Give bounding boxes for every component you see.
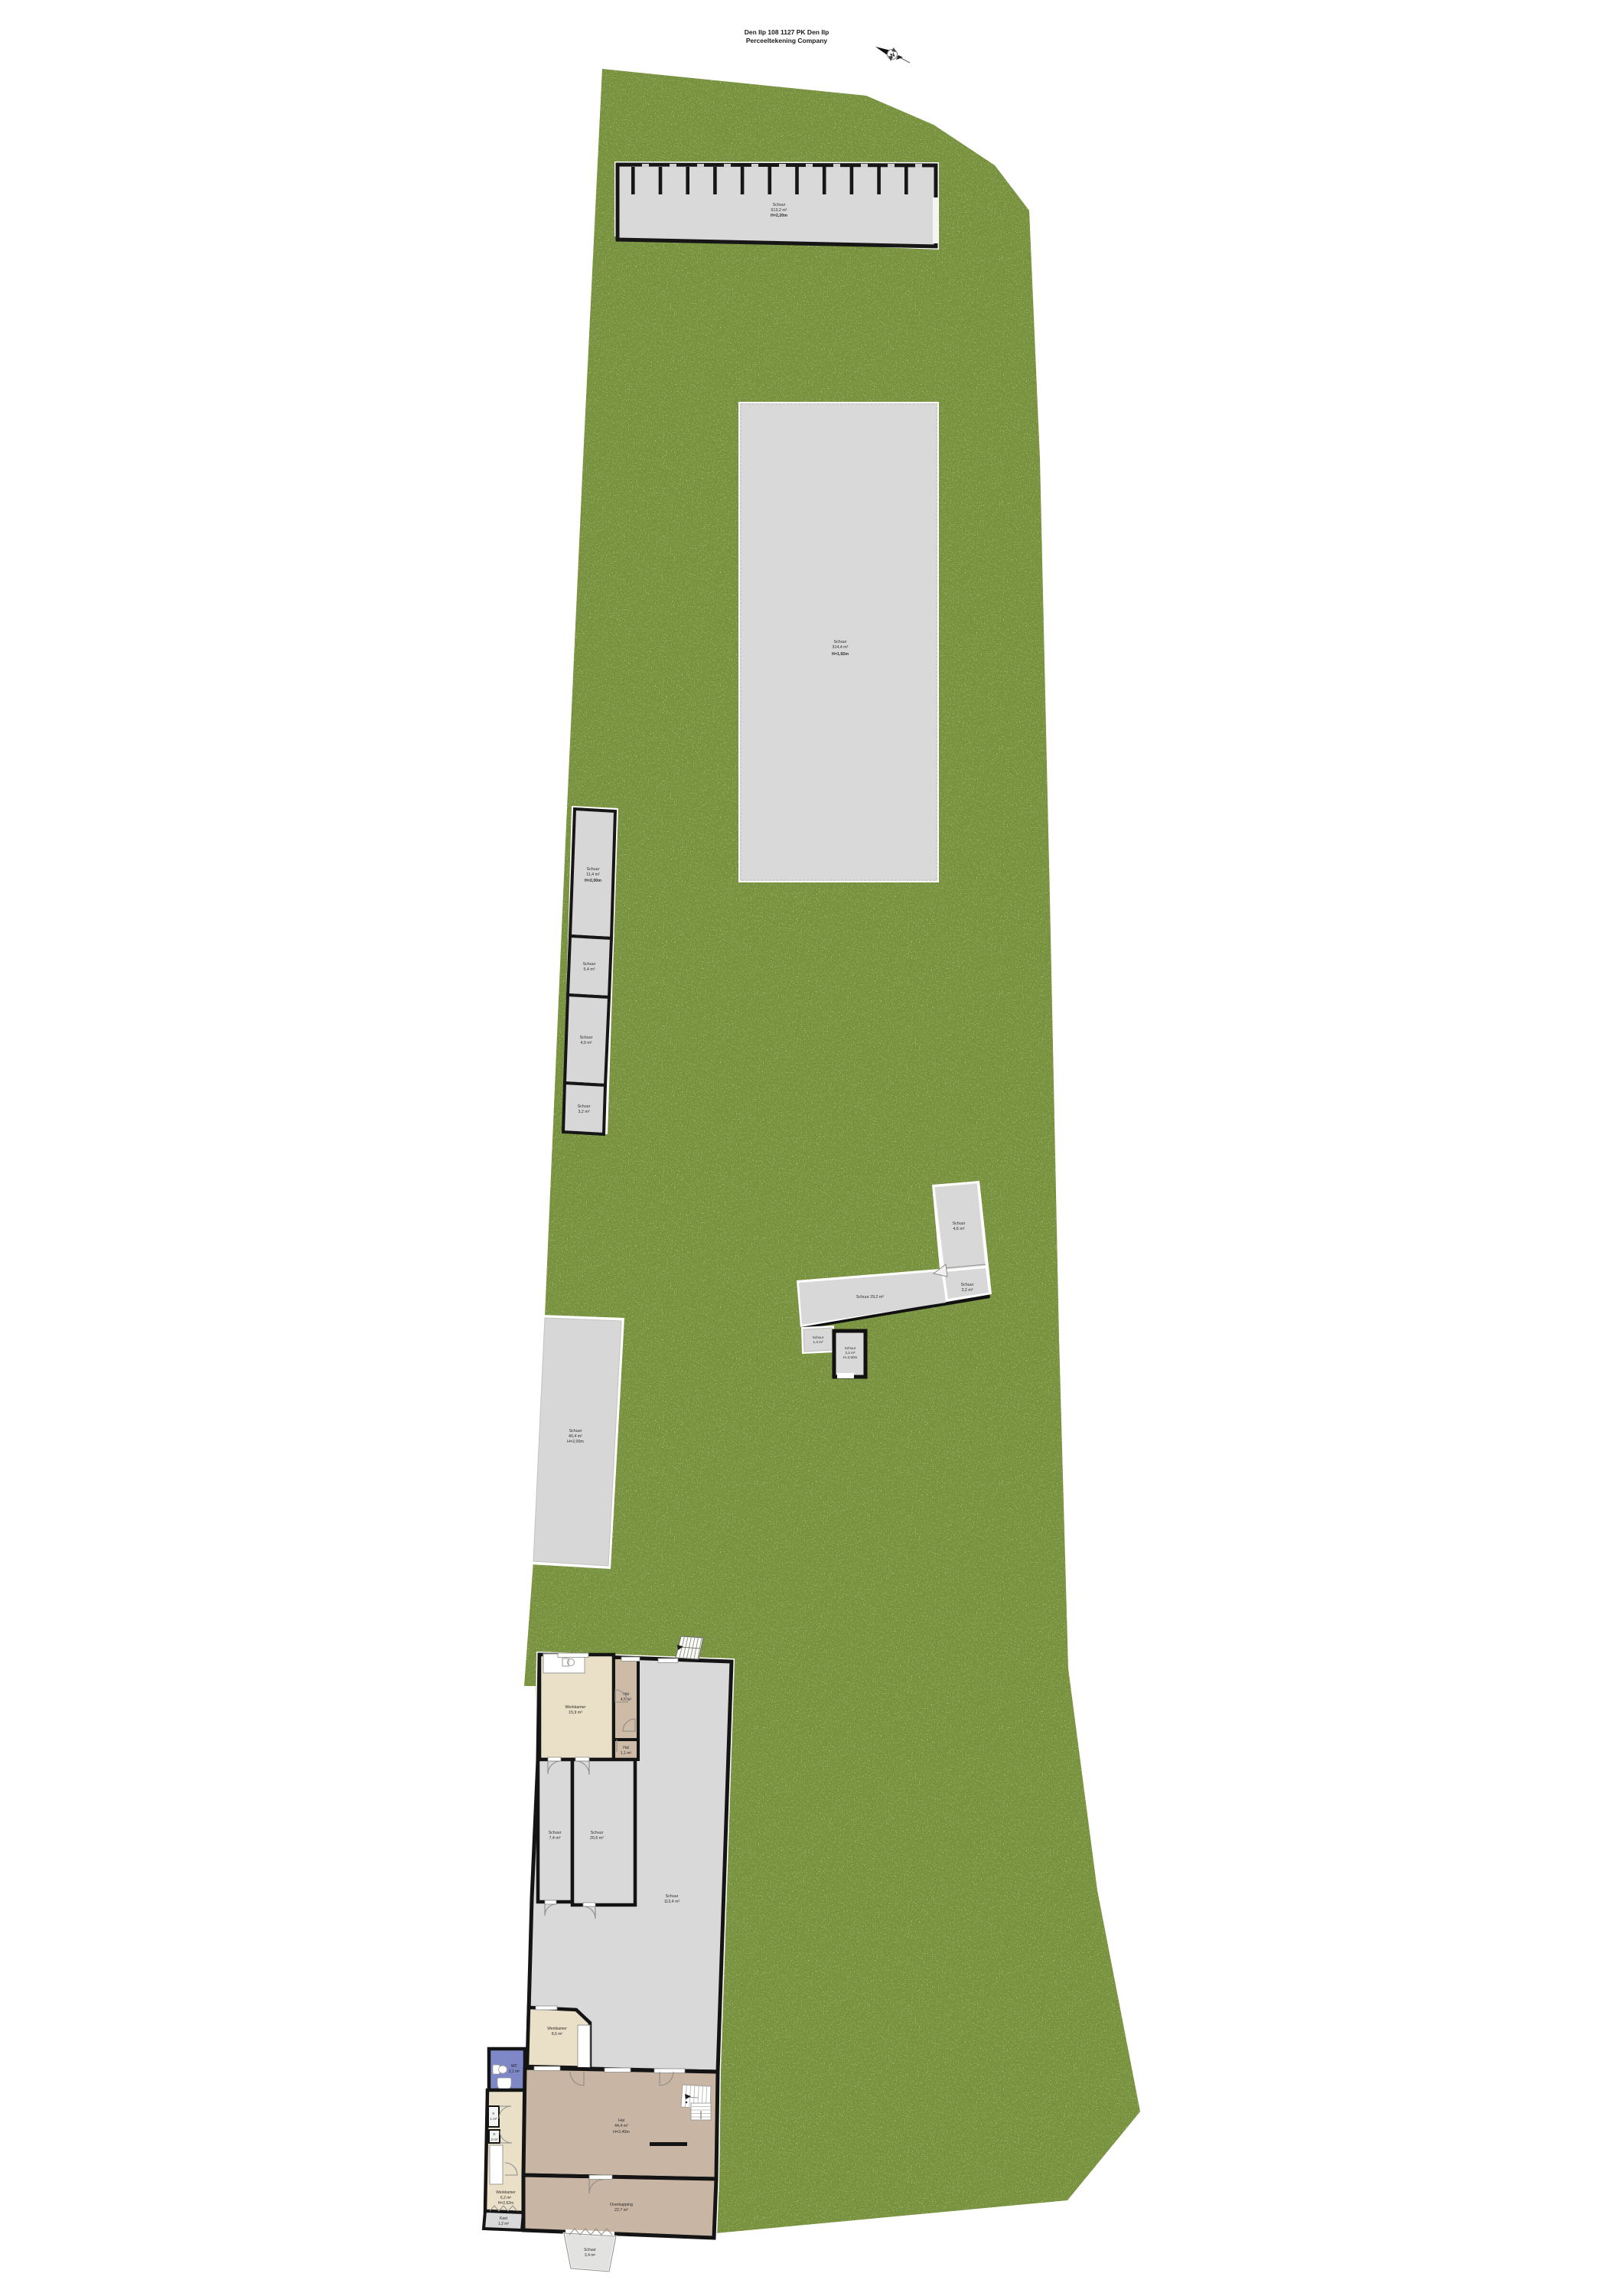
- svg-text:22,7 m²: 22,7 m²: [614, 2208, 628, 2213]
- svg-text:Schuur: Schuur: [587, 867, 600, 872]
- svg-text:Perceeltekening Company: Perceeltekening Company: [746, 37, 828, 44]
- svg-text:3,2 m²: 3,2 m²: [961, 1288, 973, 1293]
- svg-text:K: K: [493, 2132, 495, 2136]
- svg-text:Schuur: Schuur: [584, 2248, 596, 2252]
- svg-text:H=2,62m: H=2,62m: [498, 2201, 513, 2206]
- svg-text:Schuur: Schuur: [773, 203, 786, 207]
- svg-text:1,3 m²: 1,3 m²: [813, 1340, 823, 1344]
- svg-text:11,4 m²: 11,4 m²: [586, 872, 600, 877]
- svg-text:6,2 m²: 6,2 m²: [500, 2196, 512, 2200]
- svg-text:Kast: Kast: [500, 2216, 508, 2221]
- svg-text:Werkkamer: Werkkamer: [565, 1705, 586, 1710]
- svg-text:Schuur: Schuur: [953, 1221, 966, 1226]
- svg-text:Schuur: Schuur: [813, 1336, 824, 1339]
- svg-text:Schuur: Schuur: [578, 1104, 591, 1109]
- svg-text:2,2 m²: 2,2 m²: [845, 1351, 855, 1355]
- svg-text:20,6 m²: 20,6 m²: [590, 1836, 604, 1841]
- svg-text:Schuur: Schuur: [834, 640, 847, 644]
- svg-text:1 m²: 1 m²: [490, 2117, 498, 2121]
- svg-text:Schuur 29,2 m²: Schuur 29,2 m²: [856, 1295, 884, 1300]
- svg-text:Hal: Hal: [623, 1746, 629, 1750]
- svg-text:4,0 m²: 4,0 m²: [580, 1041, 592, 1045]
- svg-text:3,2 m²: 3,2 m²: [578, 1110, 589, 1114]
- svg-text:H=2,20m: H=2,20m: [771, 214, 787, 218]
- svg-text:3,4 m²: 3,4 m²: [585, 2253, 596, 2258]
- svg-text:Schuur: Schuur: [580, 1035, 593, 1040]
- svg-text:H=1,92m: H=1,92m: [832, 652, 849, 657]
- svg-text:15,9 m²: 15,9 m²: [569, 1711, 582, 1715]
- svg-text:K: K: [492, 2112, 494, 2115]
- svg-text:2,1 m²: 2,1 m²: [509, 2069, 520, 2074]
- svg-text:1,2 m²: 1,2 m²: [498, 2222, 510, 2226]
- svg-text:4,6 m²: 4,6 m²: [953, 1227, 964, 1231]
- svg-text:2 m²: 2 m²: [491, 2138, 499, 2141]
- svg-text:5,4 m²: 5,4 m²: [583, 967, 595, 972]
- svg-text:Schuur: Schuur: [583, 962, 596, 967]
- svg-text:H=2,50m: H=2,50m: [843, 1355, 858, 1359]
- svg-text:Schuur: Schuur: [549, 1831, 562, 1835]
- svg-text:H=2,40m: H=2,40m: [613, 2130, 630, 2135]
- svg-text:Werkkamer: Werkkamer: [547, 2027, 567, 2031]
- svg-text:Schuur: Schuur: [666, 1894, 679, 1899]
- svg-text:Werkkamer: Werkkamer: [496, 2190, 516, 2195]
- svg-text:314,4 m²: 314,4 m²: [833, 645, 849, 650]
- svg-text:Overkapping: Overkapping: [610, 2203, 633, 2207]
- svg-text:1,1 m²: 1,1 m²: [621, 1751, 632, 1756]
- svg-text:113,4 m²: 113,4 m²: [664, 1900, 680, 1904]
- svg-text:Schuur: Schuur: [845, 1346, 856, 1350]
- svg-text:Schuur: Schuur: [961, 1283, 974, 1287]
- svg-text:Schuur: Schuur: [591, 1831, 604, 1835]
- svg-text:7,4 m²: 7,4 m²: [549, 1836, 560, 1841]
- svg-text:Hal: Hal: [618, 2118, 624, 2123]
- svg-text:Schuur: Schuur: [569, 1429, 582, 1433]
- svg-text:44,4 m²: 44,4 m²: [614, 2124, 628, 2128]
- svg-text:H=2,00m: H=2,00m: [585, 879, 601, 883]
- svg-text:513,2 m²: 513,2 m²: [771, 208, 787, 213]
- svg-text:WC: WC: [511, 2064, 518, 2069]
- svg-text:8,6 m²: 8,6 m²: [552, 2032, 563, 2037]
- svg-text:4,5 m²: 4,5 m²: [621, 1698, 632, 1702]
- svg-text:H=2,00m: H=2,00m: [567, 1440, 584, 1444]
- svg-text:Den Ilp 108 1127 PK Den Ilp: Den Ilp 108 1127 PK Den Ilp: [745, 28, 829, 36]
- svg-text:40,4 m²: 40,4 m²: [569, 1434, 582, 1439]
